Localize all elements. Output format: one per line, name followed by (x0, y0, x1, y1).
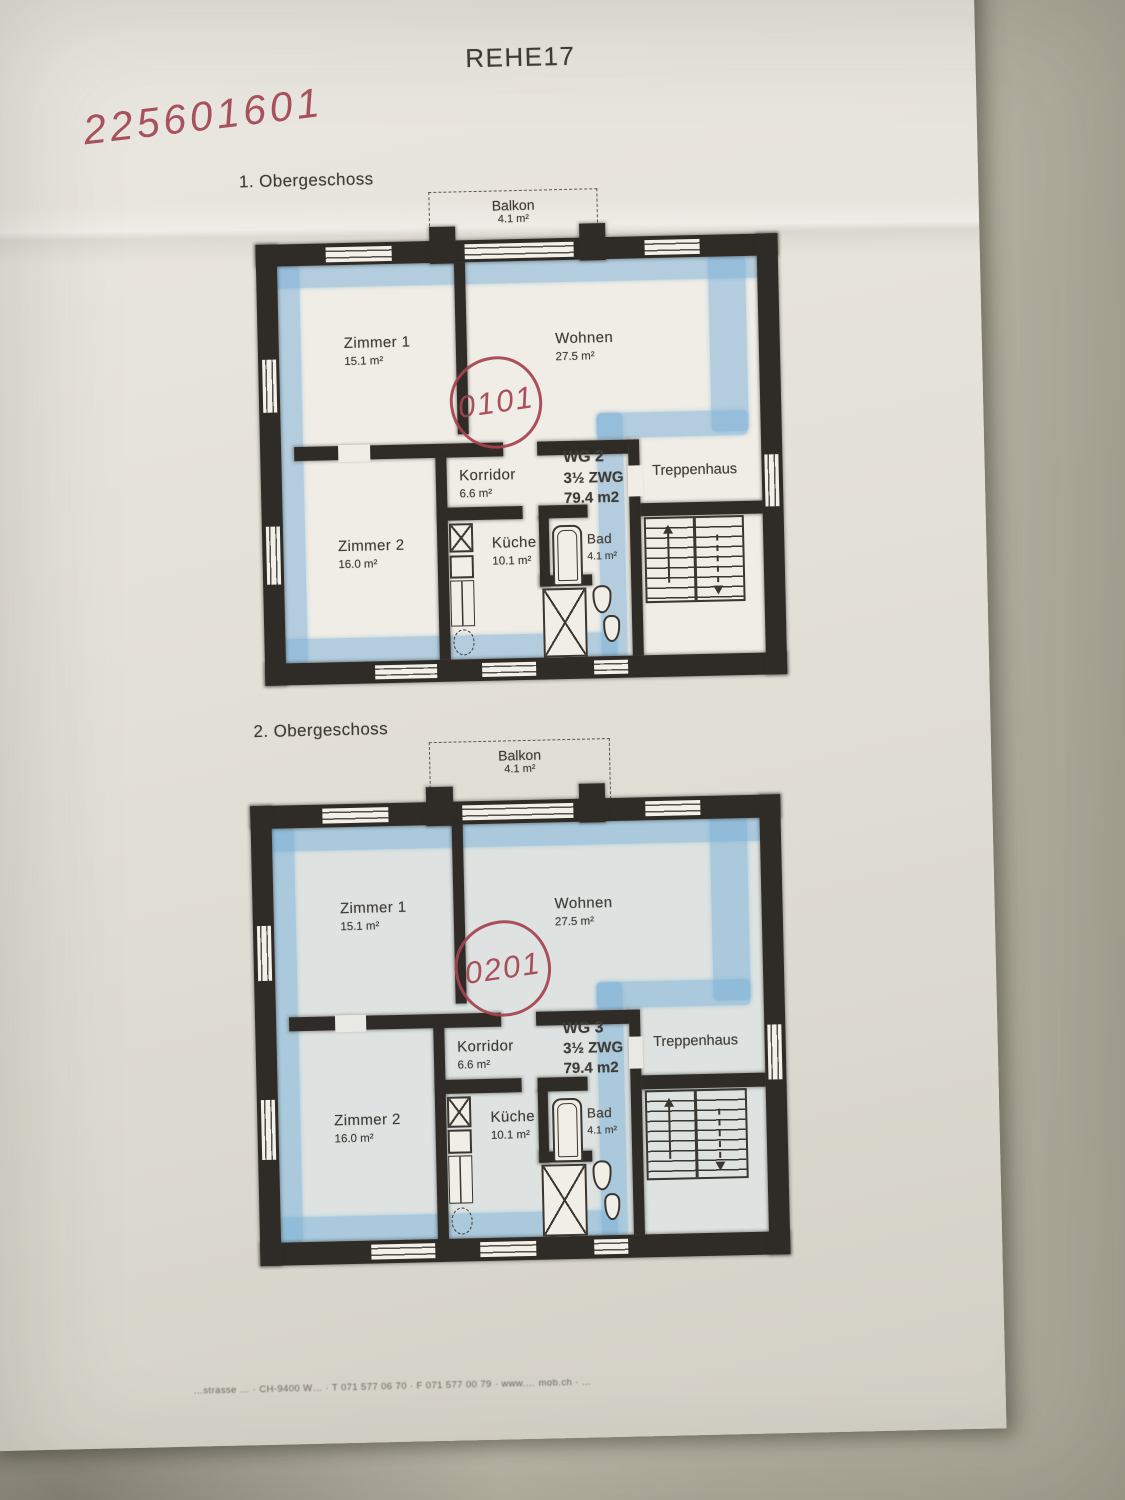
bathtub-icon (552, 524, 584, 586)
door-opening (628, 1037, 644, 1070)
window-marker (322, 807, 389, 824)
handwritten-reference-number: 225601601 (81, 79, 326, 154)
window-marker (257, 925, 273, 980)
window-marker (767, 1024, 783, 1079)
document-title: REHE17 (465, 41, 576, 74)
room-label-korridor: Korridor 6.6 m² (459, 464, 516, 502)
kitchen-cabinet-icon (450, 580, 475, 627)
highlight-band (710, 816, 751, 1001)
room-label-bad: Bad 4.1 m² (587, 530, 618, 564)
kitchen-appliance-icon (449, 523, 474, 553)
balcony-pier (429, 226, 456, 264)
highlight-band (708, 254, 749, 431)
shaft-icon (542, 588, 587, 658)
staircase (645, 1089, 749, 1181)
staircase (644, 515, 746, 603)
room-label-treppenhaus: Treppenhaus (653, 1030, 738, 1052)
room-label-kueche: Küche 10.1 m² (492, 532, 537, 570)
kitchen-appliance-icon (447, 1097, 472, 1128)
interior-wall (641, 500, 763, 516)
floor-label: 2. Obergeschoss (253, 719, 388, 742)
room-label-bad: Bad 4.1 m² (587, 1104, 618, 1138)
balcony-pier (426, 787, 453, 826)
window-marker (265, 527, 280, 585)
window-marker (326, 246, 392, 262)
window-marker (645, 800, 701, 816)
room-label-zimmer2: Zimmer 2 16.0 m² (338, 535, 405, 574)
interior-wall (437, 1078, 522, 1094)
door-opening (334, 1014, 366, 1032)
bathtub-icon (552, 1098, 584, 1163)
window-marker (262, 359, 277, 412)
kitchen-counter-icon (447, 1130, 472, 1154)
paper-document: REHE17 225601601 1. Obergeschoss Balkon … (0, 0, 1006, 1451)
window-marker (480, 1241, 536, 1257)
room-label-zimmer1: Zimmer 1 15.1 m² (340, 897, 407, 936)
kitchen-sink-icon (453, 630, 474, 656)
window-marker (482, 662, 537, 678)
interior-wall (436, 457, 451, 660)
room-label-korridor: Korridor 6.6 m² (457, 1035, 514, 1073)
interior-wall (294, 442, 503, 461)
door-opening (338, 444, 370, 461)
photo-canvas: REHE17 225601601 1. Obergeschoss Balkon … (0, 0, 1125, 1500)
balcony-door-marker (462, 803, 574, 821)
floor-label: 1. Obergeschoss (239, 169, 374, 192)
interior-wall (439, 506, 523, 521)
window-marker (261, 1100, 277, 1160)
window-marker (765, 454, 780, 507)
floor-plan: Zimmer 1 15.1 m² Wohnen 27.5 m² Korridor… (255, 233, 787, 686)
room-label-zimmer2: Zimmer 2 16.0 m² (334, 1109, 401, 1148)
unit-label: WG 3 3½ ZWG 79.4 m2 (562, 1016, 623, 1079)
window-marker (371, 1243, 435, 1260)
kitchen-cabinet-icon (448, 1155, 473, 1204)
room-label-treppenhaus: Treppenhaus (652, 459, 737, 481)
footer-contact-line: …strasse … · CH-9400 W… · T 071 577 06 7… (193, 1367, 1003, 1396)
kitchen-counter-icon (449, 555, 474, 578)
balcony-pier (579, 223, 606, 261)
balcony-area: 4.1 m² (430, 211, 597, 227)
room-label-wohnen: Wohnen 27.5 m² (555, 327, 614, 365)
interior-wall (642, 1073, 766, 1090)
window-marker (594, 1239, 629, 1255)
window-marker (375, 664, 438, 680)
unit-label: WG 2 3½ ZWG 79.4 m2 (563, 446, 624, 509)
balcony-door-marker (464, 242, 574, 259)
window-marker (594, 660, 628, 675)
door-opening (628, 466, 643, 497)
room-label-wohnen: Wohnen 27.5 m² (554, 892, 613, 930)
balcony-pier (578, 783, 605, 822)
window-marker (644, 239, 699, 255)
room-label-kueche: Küche 10.1 m² (490, 1106, 535, 1144)
shaft-icon (541, 1164, 587, 1237)
kitchen-sink-icon (451, 1207, 473, 1234)
floor-plan: Zimmer 1 15.1 m² Wohnen 27.5 m² Korridor… (250, 794, 790, 1266)
room-label-zimmer1: Zimmer 1 15.1 m² (344, 332, 411, 371)
